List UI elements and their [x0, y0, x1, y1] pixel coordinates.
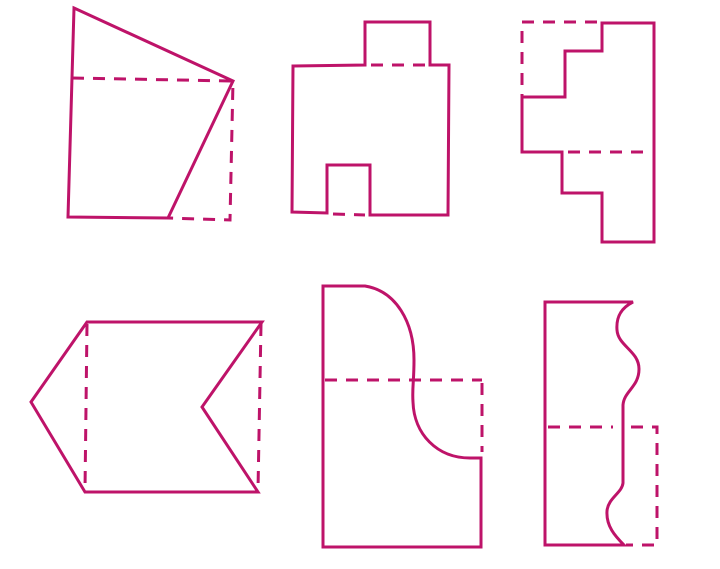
- fold-figure-s-curve: [323, 286, 482, 547]
- fold-figure-s-curve-solid-outline: [323, 286, 481, 547]
- fold-figure-square-tab-notch-fold-line-dashed: [333, 65, 428, 215]
- fold-figure-chevron-fold-line-dashed: [85, 324, 261, 490]
- fold-figure-quadrilateral-solid-outline: [68, 8, 233, 218]
- fold-figure-quadrilateral: [68, 8, 233, 220]
- fold-figure-quadrilateral-fold-line-dashed: [72, 78, 233, 220]
- fold-figure-staircase: [522, 22, 654, 242]
- shapes-worksheet: [0, 0, 720, 569]
- fold-figure-wavy-solid-outline: [545, 302, 639, 545]
- fold-figure-wavy: [545, 302, 657, 545]
- fold-figure-staircase-fold-line-dashed: [522, 22, 649, 152]
- fold-figure-square-tab-notch: [292, 22, 449, 215]
- fold-figure-square-tab-notch-solid-outline: [292, 22, 449, 215]
- fold-figure-wavy-fold-line-dashed: [548, 427, 657, 545]
- fold-figure-staircase-solid-outline: [522, 23, 654, 242]
- fold-figure-s-curve-fold-line-dashed: [325, 380, 482, 452]
- fold-figure-chevron-solid-outline: [31, 322, 262, 492]
- figures-canvas: [0, 0, 720, 569]
- fold-figure-chevron: [31, 322, 262, 492]
